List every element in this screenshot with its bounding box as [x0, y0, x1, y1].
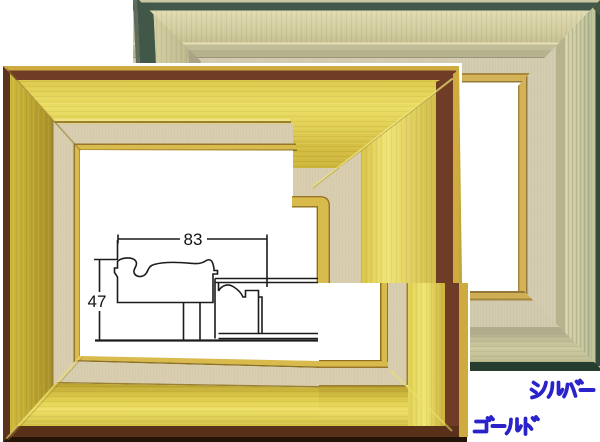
svg-text:83: 83	[184, 230, 203, 249]
svg-text:47: 47	[88, 292, 107, 311]
